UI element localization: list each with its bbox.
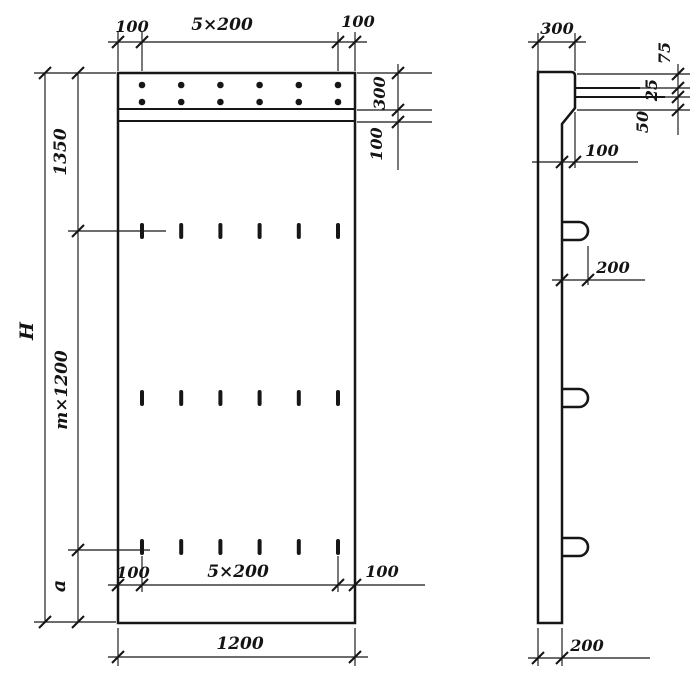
bolt-dot — [296, 99, 303, 106]
dim-front-height-overall: H — [16, 321, 38, 341]
dim-front-top-right: 100 — [341, 12, 374, 31]
side-dimension-lines — [528, 33, 690, 666]
dim-front-bottom-span: 5×200 — [207, 562, 269, 582]
slot-mark — [179, 539, 183, 555]
dim-side-loop-protrusion: 200 — [595, 258, 629, 277]
bolt-dot — [178, 99, 185, 106]
bolt-dot — [296, 82, 303, 89]
slot-mark — [218, 539, 222, 555]
front-panel-outline — [118, 73, 355, 623]
slot-mark — [218, 223, 222, 239]
side-view: 300 75 25 50 100 200 200 — [528, 19, 690, 666]
slot-mark — [297, 223, 301, 239]
dim-front-top-span: 5×200 — [191, 15, 253, 35]
bolt-dot — [256, 82, 263, 89]
bolt-dot — [217, 82, 224, 89]
dim-front-middle-segment: m×1200 — [52, 350, 72, 430]
side-profile-outline — [538, 72, 575, 623]
lifting-loop — [562, 389, 588, 407]
dim-front-bottom-segment: a — [48, 580, 70, 592]
dim-front-top-segment: 1350 — [51, 128, 71, 175]
bolt-dot — [217, 99, 224, 106]
slot-mark — [179, 390, 183, 406]
dim-side-detail-mid: 25 — [642, 79, 661, 102]
bolt-dot — [178, 82, 185, 89]
dim-front-top-left: 100 — [115, 17, 148, 36]
dim-side-bottom-width: 200 — [569, 636, 603, 655]
slot-mark — [297, 539, 301, 555]
slot-mark — [336, 539, 340, 555]
blueprint-canvas: 100 5×200 100 300 100 H 1350 m×1200 a 10… — [0, 0, 700, 700]
lifting-loop — [562, 222, 588, 240]
slot-mark — [218, 390, 222, 406]
dim-front-width-overall: 1200 — [216, 634, 263, 654]
slot-marks — [140, 223, 340, 555]
slot-mark — [258, 390, 262, 406]
technical-drawing: 100 5×200 100 300 100 H 1350 m×1200 a 10… — [0, 0, 700, 700]
bolt-dot — [139, 82, 146, 89]
slot-mark — [179, 223, 183, 239]
dim-side-detail-top: 75 — [655, 42, 674, 64]
dim-side-ledge-offset: 100 — [585, 141, 618, 160]
dim-front-right-strip: 100 — [367, 127, 386, 160]
dim-front-right-band: 300 — [370, 76, 389, 109]
bolt-dot — [139, 99, 146, 106]
slot-mark — [258, 223, 262, 239]
side-dimension-ticks — [532, 36, 684, 664]
lifting-loop — [562, 538, 588, 556]
bolt-dot — [256, 99, 263, 106]
dim-side-detail-bottom: 50 — [633, 111, 652, 133]
bolt-dot — [335, 99, 342, 106]
side-dimension-labels: 300 75 25 50 100 200 200 — [540, 19, 674, 655]
bolt-dots — [139, 82, 342, 106]
slot-mark — [258, 539, 262, 555]
slot-mark — [140, 390, 144, 406]
lifting-loops — [562, 222, 588, 556]
bolt-dot — [335, 82, 342, 89]
slot-mark — [336, 390, 340, 406]
dim-front-bottom-left: 100 — [116, 563, 149, 582]
front-view: 100 5×200 100 300 100 H 1350 m×1200 a 10… — [16, 12, 432, 666]
slot-mark — [336, 223, 340, 239]
dim-front-bottom-right: 100 — [365, 562, 398, 581]
dim-side-top-width: 300 — [540, 19, 573, 38]
slot-mark — [140, 539, 144, 555]
slot-mark — [297, 390, 301, 406]
